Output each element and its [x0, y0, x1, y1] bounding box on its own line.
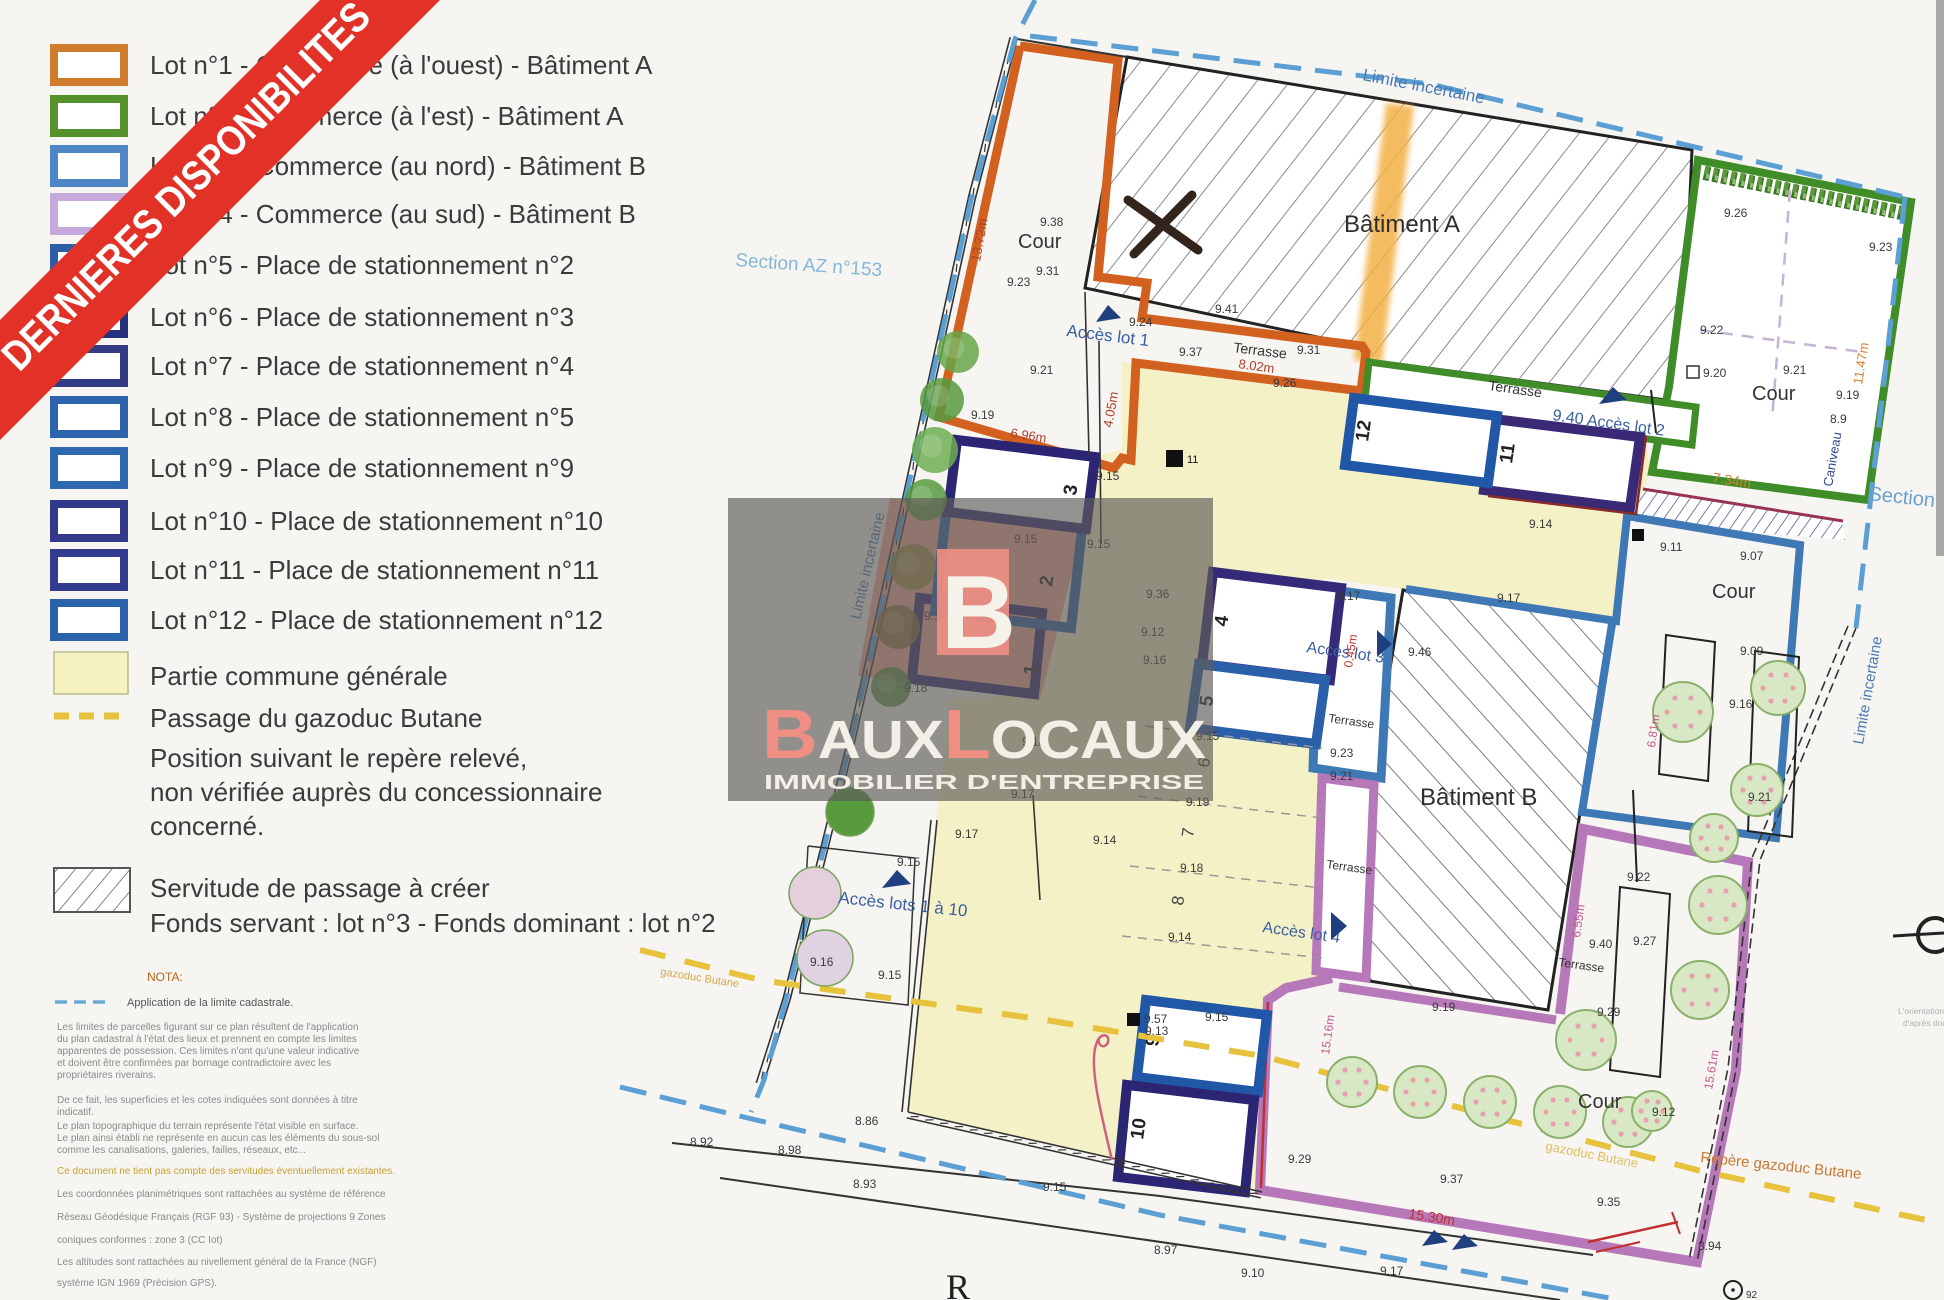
svg-text:9.29: 9.29	[1288, 1152, 1312, 1166]
svg-text:NOTA:: NOTA:	[147, 970, 183, 984]
svg-text:9.15: 9.15	[1043, 1180, 1067, 1194]
svg-text:9.31: 9.31	[1297, 343, 1321, 357]
svg-text:d'après docu: d'après docu	[1903, 1018, 1944, 1028]
svg-text:Le plan ainsi établi ne représ: Le plan ainsi établi ne représente en au…	[57, 1133, 379, 1144]
svg-text:Le plan topographique du terra: Le plan topographique du terrain représe…	[57, 1121, 359, 1132]
svg-text:9.23: 9.23	[1007, 275, 1031, 289]
svg-text:9.14: 9.14	[1093, 833, 1117, 847]
svg-text:Lot n°10 - Place de stationnem: Lot n°10 - Place de stationnement n°10	[150, 506, 603, 536]
svg-text:9.41: 9.41	[1215, 302, 1239, 316]
svg-text:9.23: 9.23	[1330, 746, 1354, 760]
svg-text:9.22: 9.22	[1700, 323, 1724, 337]
svg-text:Bâtiment B: Bâtiment B	[1420, 784, 1537, 811]
svg-text:Lot n°7 - Place de stationneme: Lot n°7 - Place de stationnement n°4	[150, 351, 574, 381]
svg-text:9.22: 9.22	[1627, 870, 1651, 884]
svg-text:Passage du gazoduc Butane: Passage du gazoduc Butane	[150, 703, 482, 733]
svg-text:9.37: 9.37	[1440, 1172, 1464, 1186]
svg-text:9.13: 9.13	[1145, 1024, 1169, 1038]
svg-text:Cour: Cour	[1752, 383, 1796, 405]
svg-text:9.14: 9.14	[1168, 930, 1192, 944]
svg-text:9.15: 9.15	[897, 855, 921, 869]
svg-text:R: R	[946, 1267, 970, 1300]
svg-text:9.10: 9.10	[1241, 1266, 1265, 1280]
svg-text:8.94: 8.94	[1698, 1239, 1722, 1253]
svg-text:8.92: 8.92	[690, 1135, 714, 1149]
svg-text:Cour: Cour	[1018, 231, 1062, 253]
svg-text:8.98: 8.98	[778, 1143, 802, 1157]
svg-text:9.12: 9.12	[1652, 1105, 1676, 1119]
svg-text:9.46: 9.46	[1408, 645, 1432, 659]
svg-text:Bâtiment A: Bâtiment A	[1344, 211, 1460, 238]
svg-text:B: B	[941, 555, 1016, 671]
svg-text:9.15: 9.15	[878, 968, 902, 982]
svg-text:8.93: 8.93	[853, 1177, 877, 1191]
svg-text:9.27: 9.27	[1633, 934, 1657, 948]
svg-text:L'orientation est: L'orientation est	[1898, 1006, 1944, 1016]
svg-text:11: 11	[1187, 454, 1198, 466]
svg-text:Partie commune générale: Partie commune générale	[150, 661, 448, 691]
svg-text:Les limites de parcelles figur: Les limites de parcelles figurant sur ce…	[57, 1022, 359, 1033]
svg-text:9.20: 9.20	[1703, 366, 1727, 380]
svg-text:9.11: 9.11	[1660, 540, 1683, 554]
svg-text:9.17: 9.17	[1497, 591, 1521, 605]
svg-text:9.35: 9.35	[1597, 1195, 1621, 1209]
svg-text:11: 11	[1496, 441, 1520, 464]
svg-text:9.19: 9.19	[1432, 1000, 1456, 1014]
svg-text:coniques conformes : zone 3 (C: coniques conformes : zone 3 (CC Iot)	[57, 1235, 223, 1246]
svg-text:Lot n°5 - Place de stationneme: Lot n°5 - Place de stationnement n°2	[150, 250, 574, 280]
svg-text:propriétaires riverains.: propriétaires riverains.	[57, 1070, 156, 1081]
svg-text:10: 10	[1127, 1117, 1151, 1141]
svg-text:9.31: 9.31	[1036, 264, 1060, 278]
svg-text:Lot n°1 - Commerce (à l'ouest): Lot n°1 - Commerce (à l'ouest) - Bâtimen…	[150, 50, 653, 80]
svg-text:9.21: 9.21	[1030, 363, 1054, 377]
svg-text:Lot n°6 - Place de stationneme: Lot n°6 - Place de stationnement n°3	[150, 302, 574, 332]
svg-text:Les altitudes sont rattachées: Les altitudes sont rattachées au nivelle…	[57, 1257, 377, 1268]
svg-text:Position suivant le repère rel: Position suivant le repère relevé,	[150, 743, 527, 773]
svg-text:8.97: 8.97	[1154, 1243, 1178, 1257]
svg-text:9.19: 9.19	[971, 408, 995, 422]
svg-text:indicatif.: indicatif.	[57, 1107, 94, 1118]
svg-text:Lot n°11 - Place de stationnem: Lot n°11 - Place de stationnement n°11	[150, 555, 599, 585]
svg-text:9.18: 9.18	[1180, 861, 1204, 875]
svg-text:9.38: 9.38	[1040, 215, 1064, 229]
svg-text:9.19: 9.19	[1836, 388, 1860, 402]
svg-text:9.17: 9.17	[1337, 589, 1361, 603]
svg-text:9.23: 9.23	[1869, 240, 1893, 254]
svg-text:Ce document ne tient pas compt: Ce document ne tient pas compte des serv…	[57, 1166, 395, 1177]
svg-text:9.09: 9.09	[1740, 644, 1764, 658]
svg-text:9.24: 9.24	[1129, 315, 1153, 329]
svg-text:8.86: 8.86	[855, 1114, 879, 1128]
svg-text:concerné.: concerné.	[150, 811, 264, 841]
svg-text:et doivent être confirmées par: et doivent être confirmées par bornage c…	[57, 1058, 331, 1069]
svg-text:92: 92	[1746, 1290, 1758, 1300]
svg-text:9.40: 9.40	[1589, 937, 1613, 951]
svg-text:9.29: 9.29	[1597, 1005, 1621, 1019]
svg-text:9.16: 9.16	[1729, 697, 1753, 711]
svg-text:9.26: 9.26	[1724, 206, 1748, 220]
svg-text:Fonds servant : lot n°3 - Fond: Fonds servant : lot n°3 - Fonds dominant…	[150, 908, 716, 938]
svg-text:comme les canalisations, galer: comme les canalisations, galeries, faill…	[57, 1145, 306, 1156]
svg-text:9.07: 9.07	[1740, 549, 1764, 563]
svg-text:Cour: Cour	[1578, 1091, 1622, 1113]
svg-text:9.57: 9.57	[1144, 1012, 1168, 1026]
svg-text:9.21: 9.21	[1748, 790, 1772, 804]
svg-text:9.16: 9.16	[810, 955, 834, 969]
svg-text:système IGN 1969 (Précision GP: système IGN 1969 (Précision GPS).	[57, 1278, 217, 1289]
svg-text:9.26: 9.26	[1273, 376, 1297, 390]
svg-text:9.37: 9.37	[1179, 345, 1203, 359]
svg-text:Servitude de passage à créer: Servitude de passage à créer	[150, 873, 490, 903]
svg-text:Réseau Géodésique Français (RG: Réseau Géodésique Français (RGF 93) - Sy…	[57, 1212, 386, 1223]
svg-text:apparentes de possession. Ces: apparentes de possession. Ces limites n'…	[57, 1046, 360, 1057]
svg-text:9.15: 9.15	[1205, 1010, 1229, 1024]
svg-text:Lot n°8 - Place de stationneme: Lot n°8 - Place de stationnement n°5	[150, 402, 574, 432]
svg-text:9.17: 9.17	[1380, 1264, 1404, 1278]
svg-text:9.21: 9.21	[1783, 363, 1807, 377]
svg-text:8.9: 8.9	[1830, 412, 1847, 426]
svg-text:Cour: Cour	[1712, 581, 1756, 603]
svg-text:non vérifiée auprès du concess: non vérifiée auprès du concessionnaire	[150, 777, 602, 807]
svg-text:du plan cadastral à l'état des: du plan cadastral à l'état des lieux et …	[57, 1034, 357, 1045]
svg-text:Les coordonnées planimétriques: Les coordonnées planimétriques sont ratt…	[57, 1189, 386, 1200]
svg-text:9.15: 9.15	[1096, 469, 1120, 483]
svg-text:9.14: 9.14	[1529, 517, 1553, 531]
svg-text:IMMOBILIER D'ENTREPRISE: IMMOBILIER D'ENTREPRISE	[764, 772, 1204, 794]
svg-text:De ce fait, les superficies et: De ce fait, les superficies et les cotes…	[57, 1095, 358, 1106]
svg-text:9.21: 9.21	[1330, 769, 1354, 783]
svg-text:9.17: 9.17	[955, 827, 979, 841]
svg-text:Application de la limite cadas: Application de la limite cadastrale.	[127, 997, 293, 1009]
svg-text:12: 12	[1352, 419, 1376, 443]
svg-text:Lot n°12 - Place de stationnem: Lot n°12 - Place de stationnement n°12	[150, 605, 603, 635]
svg-text:Lot n°9 - Place de stationneme: Lot n°9 - Place de stationnement n°9	[150, 453, 574, 483]
